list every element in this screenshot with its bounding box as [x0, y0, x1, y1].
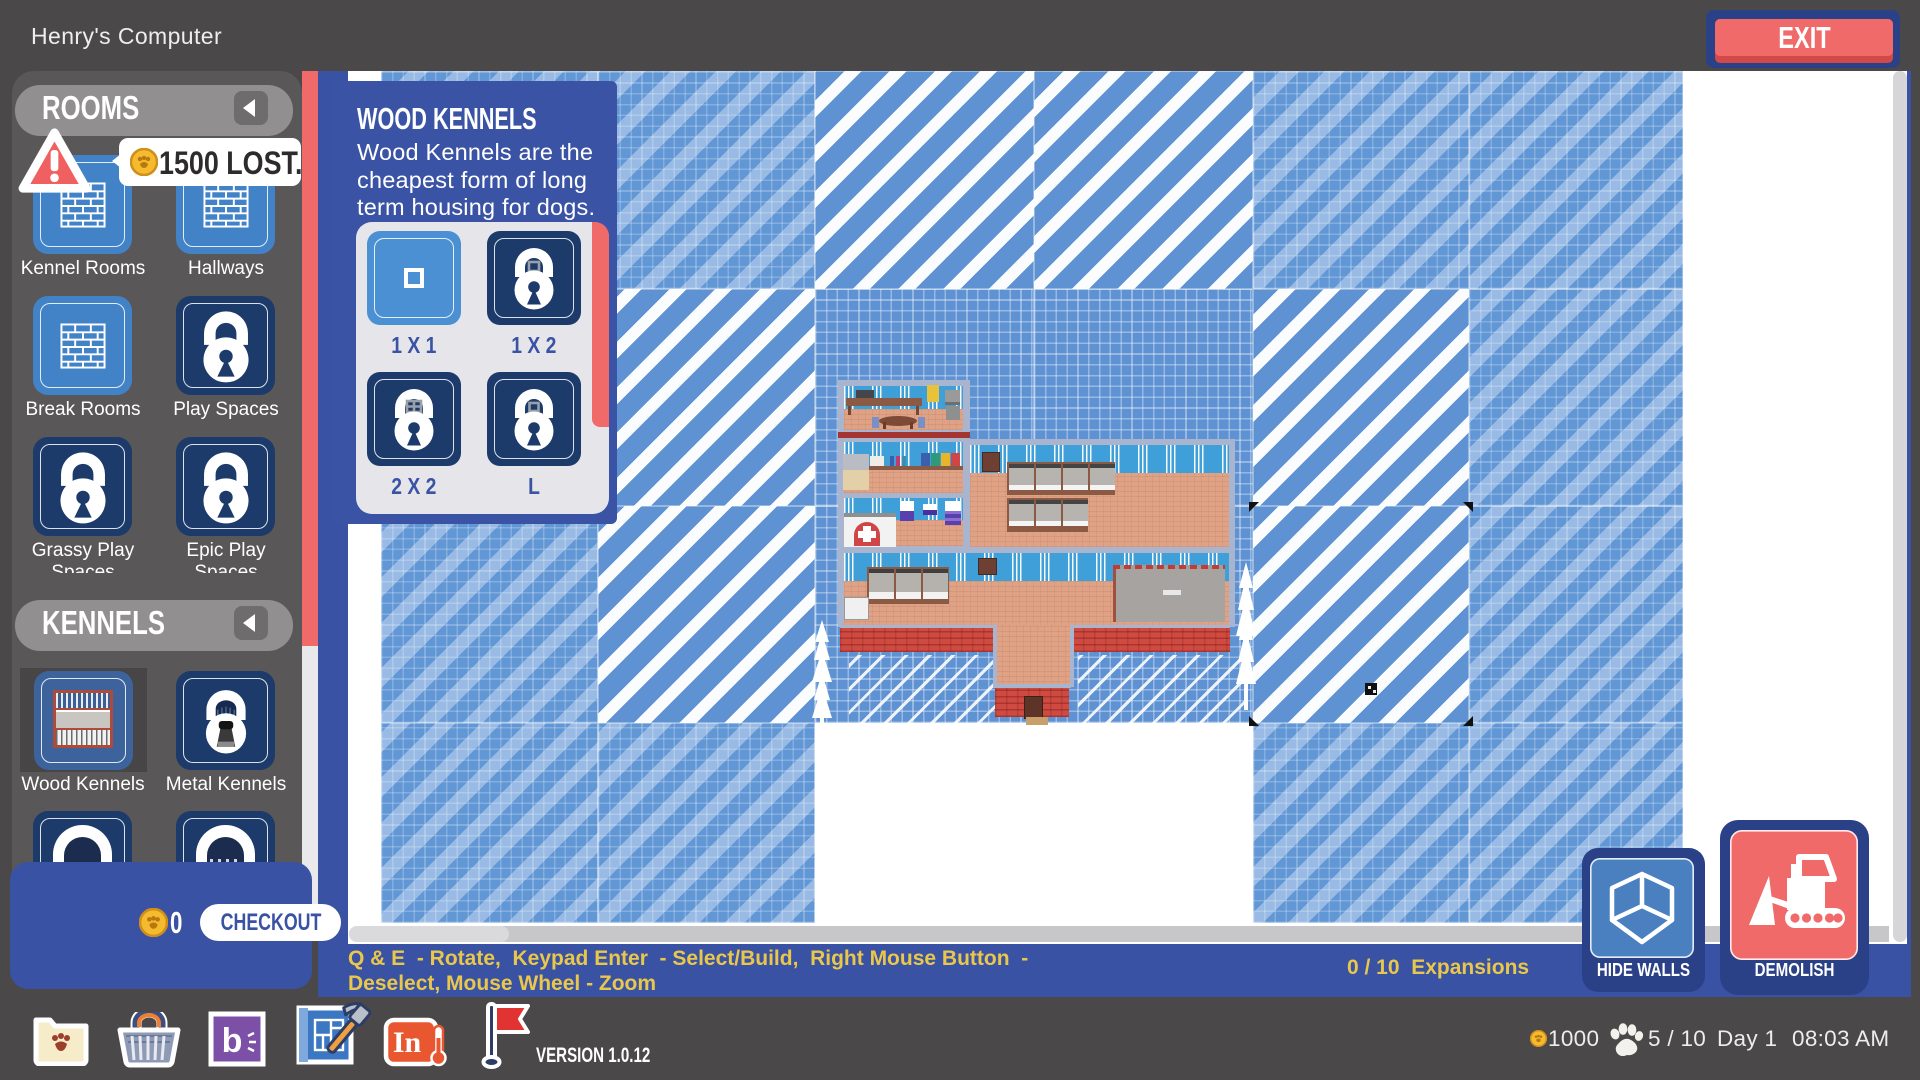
svg-text:In: In — [393, 1026, 422, 1059]
svg-text:b: b — [222, 1022, 243, 1060]
